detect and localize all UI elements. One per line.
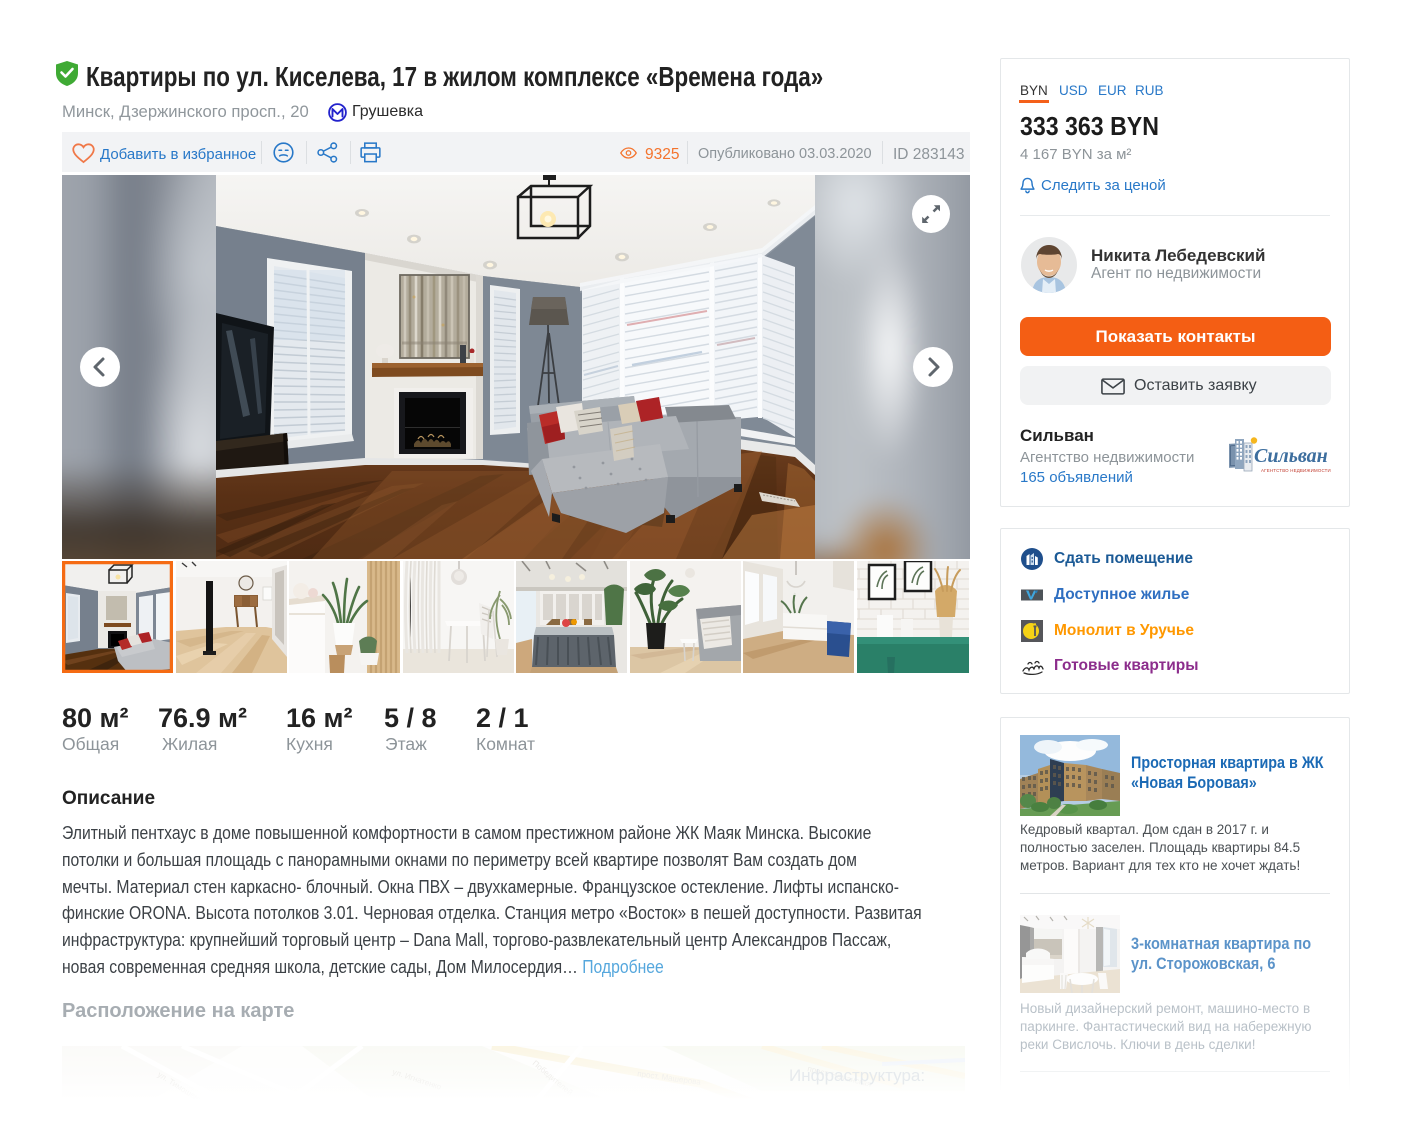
svg-text:АГЕНТСТВО НЕДВИЖИМОСТИ: АГЕНТСТВО НЕДВИЖИМОСТИ xyxy=(1261,468,1331,473)
svg-text:Сильван: Сильван xyxy=(1254,445,1328,467)
